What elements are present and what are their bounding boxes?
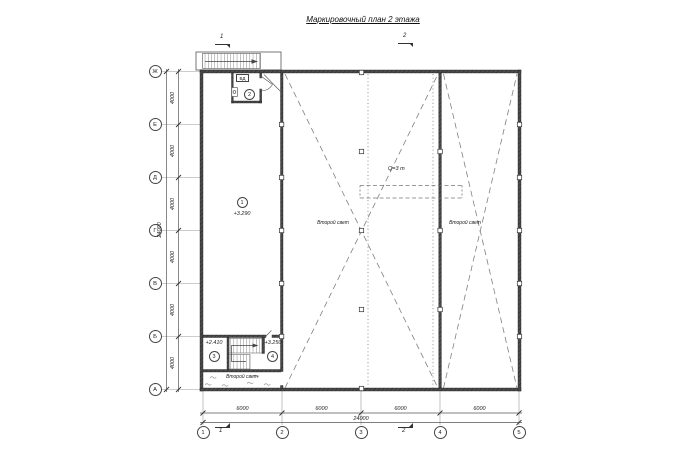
drawing-title: Маркировочный план 2 этажа [263,15,463,24]
second-light-bottom-label: Второй свет [226,375,258,381]
room-tag-1: 1 [237,197,248,208]
dim-col-total: 24000 [341,416,381,422]
void-cross-braces [285,74,517,388]
section-mark-2-top-flag [409,43,413,47]
floor-plan-canvas: Маркировочный план 2 этажа 1 2 1 2 Ж Е Д… [0,0,700,474]
room-tag-3: 3 [209,351,220,362]
plan-linework [0,0,700,474]
dim-row-6: 4000 [170,348,176,378]
sink-fixture [232,88,238,97]
section-mark-2-bottom: 2 [402,428,405,434]
section-mark-2-bottom-flag [409,423,413,427]
dim-row-1: 4000 [170,83,176,113]
dim-col-1: 6000 [223,406,263,412]
dim-col-4: 6000 [460,406,500,412]
axis-col-2: 2 [276,426,289,439]
room-elev-1: +3.290 [227,211,257,217]
second-light-left-label: Второй свет [317,221,349,227]
axis-col-5: 5 [513,426,526,439]
dim-col-3: 6000 [381,406,421,412]
exterior-stair-top [196,52,281,70]
section-mark-1-bottom: 1 [219,428,222,434]
dim-row-3: 4000 [170,189,176,219]
axis-row-e: Е [149,118,162,131]
room-elev-4: +3.250 [258,340,288,346]
doors [262,75,283,337]
dim-row-2: 4000 [170,136,176,166]
column-markers [279,70,521,390]
section-mark-1-top-flag [226,44,230,48]
axis-col-3: 3 [355,426,368,439]
section-mark-1-bottom-line [215,427,230,428]
room-tag-2: 2 [244,89,255,100]
dim-col-2: 6000 [302,406,342,412]
room-elev-3: +2.410 [199,340,229,346]
crane-runway [360,74,462,388]
section-mark-2-bottom-line [398,427,413,428]
axis-row-a: А [149,383,162,396]
dim-row-4: 4000 [170,242,176,272]
section-mark-1-bottom-flag [226,423,230,427]
dim-row-total: 24000 [157,212,163,248]
section-mark-2-top: 2 [403,33,406,39]
crane-capacity-label: Q=3 т [388,166,405,172]
axis-col-1: 1 [197,426,210,439]
axis-col-4: 4 [434,426,447,439]
dim-row-5: 4000 [170,295,176,325]
second-light-right-label: Второй свет [449,221,481,227]
vent-box-label: ВД [236,74,249,83]
axis-row-d: Д [149,171,162,184]
room-tag-4: 4 [267,351,278,362]
axis-row-zh: Ж [149,65,162,78]
axis-row-v: В [149,277,162,290]
section-mark-1-top: 1 [220,34,223,40]
axis-row-b: Б [149,330,162,343]
